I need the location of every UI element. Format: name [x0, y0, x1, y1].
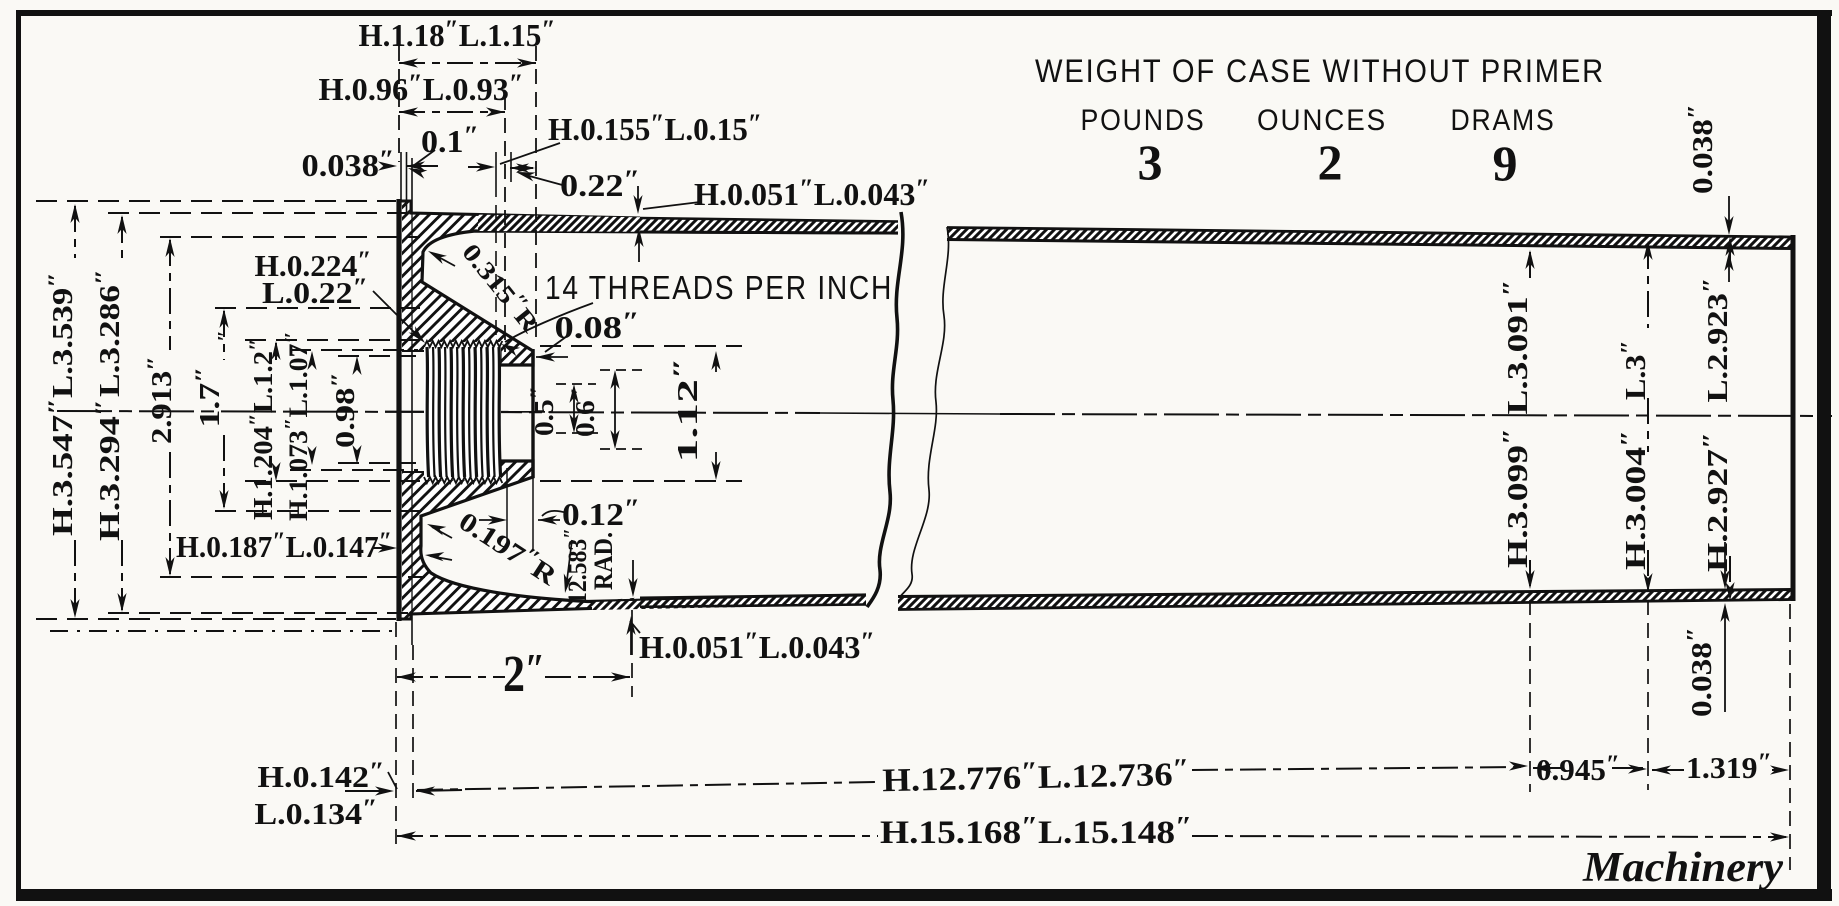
svg-text:L.3.091″​: L.3.091″​: [1499, 280, 1534, 415]
svg-text:WEIGHT OF CASE WITHOUT PRIMER: WEIGHT OF CASE WITHOUT PRIMER: [1035, 53, 1605, 89]
svg-text:H.3.099″​: H.3.099″​: [1499, 428, 1534, 568]
svg-text:RAD.: RAD.: [589, 532, 618, 590]
svg-text:L.3.286″​: L.3.286″​: [91, 269, 126, 397]
svg-text:3: 3: [1138, 134, 1163, 190]
svg-text:H.2.927″​: H.2.927″​: [1699, 432, 1734, 572]
svg-text:L.2.923″​: L.2.923″​: [1699, 278, 1734, 403]
svg-text:H.3.547″​: H.3.547″​: [44, 398, 79, 536]
svg-text:H.3.004″​: H.3.004″​: [1617, 430, 1652, 570]
svg-text:9: 9: [1493, 135, 1518, 191]
svg-text:12.583″​: 12.583″​: [559, 528, 592, 604]
svg-text:14 THREADS PER INCH: 14 THREADS PER INCH: [545, 269, 893, 306]
svg-text:H.0.142″​: H.0.142″​: [258, 757, 385, 794]
svg-text:L.3.539″​: L.3.539″​: [44, 272, 79, 398]
svg-text:OUNCES: OUNCES: [1257, 104, 1387, 137]
svg-text:H.1.204″L.1.2″​: H.1.204″L.1.2″​: [244, 338, 278, 520]
svg-text:DRAMS: DRAMS: [1451, 104, 1556, 137]
svg-text:″​: ″​: [213, 330, 237, 342]
svg-text:2: 2: [1318, 134, 1343, 190]
svg-text:L.0.22″​: L.0.22″​: [262, 273, 368, 310]
svg-text:POUNDS: POUNDS: [1081, 104, 1206, 137]
svg-text:H.3.294″​: H.3.294″​: [91, 399, 126, 541]
svg-text:L.0.134″​: L.0.134″​: [255, 794, 378, 831]
svg-text:Machinery: Machinery: [1582, 845, 1783, 891]
